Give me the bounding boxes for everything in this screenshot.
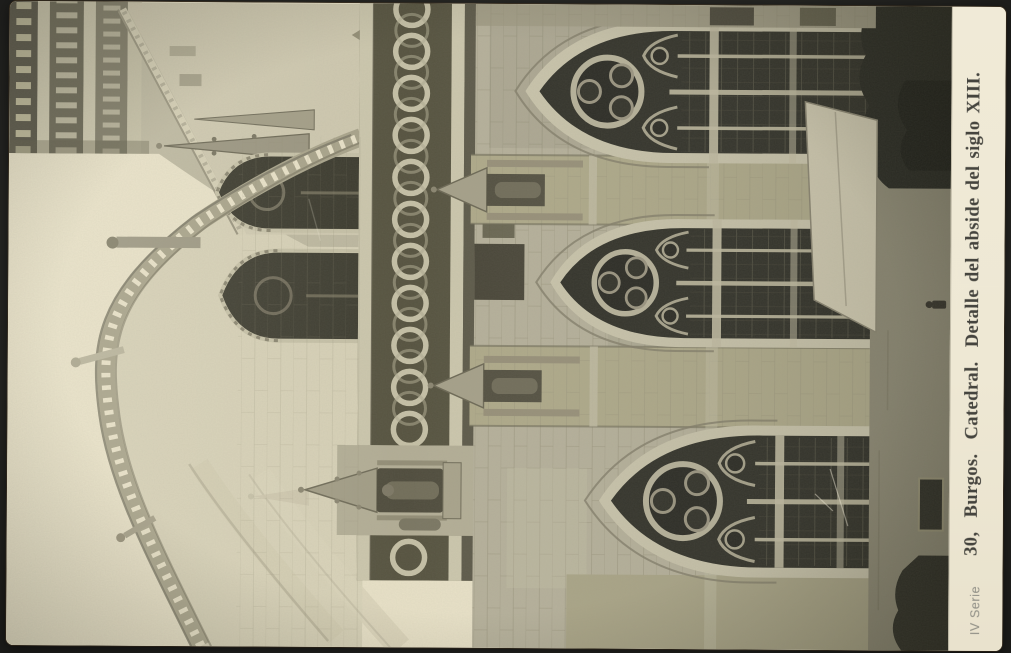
postcard-caption: 30, Burgos. Catedral. Detalle del abside… — [962, 72, 986, 556]
caption-strip: 30, Burgos. Catedral. Detalle del abside… — [948, 7, 1006, 651]
postcard-photo — [6, 1, 952, 651]
vignette — [6, 1, 952, 651]
photo-backdrop: { "postcard": { "caption": "30, Burgos. … — [0, 0, 1011, 653]
postcard-series-label: IV Serie — [968, 586, 982, 635]
postcard: 30, Burgos. Catedral. Detalle del abside… — [6, 1, 1006, 651]
